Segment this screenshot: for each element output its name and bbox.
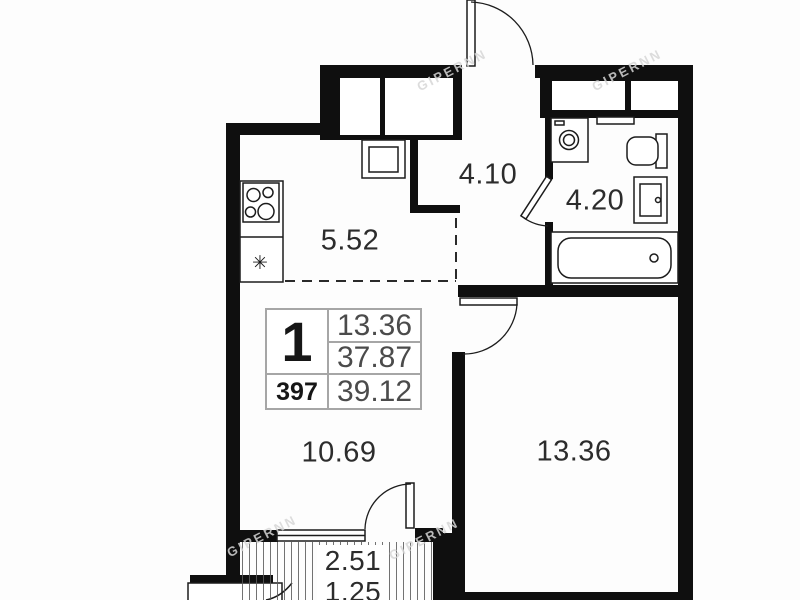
washing-machine-icon: [551, 118, 588, 162]
balcony-window: [277, 530, 365, 541]
hallway-area-label: 4.10: [459, 159, 517, 192]
bedroom-area-label: 13.36: [536, 436, 611, 469]
apartment-info-table: 1 13.36 37.87 397 39.12: [265, 308, 422, 410]
balcony-reduced-area-label: 1.25: [325, 576, 382, 600]
stove-icon: [243, 183, 279, 222]
bedroom-door: [460, 298, 517, 354]
floor-plan: 5.52 4.10 4.20 10.69 13.36 2.51 1.25 ✳ 1…: [0, 0, 800, 600]
bathroom-door: [521, 176, 552, 226]
kitchen-area-label: 5.52: [321, 225, 379, 258]
fridge-snowflake-icon: ✳: [252, 252, 268, 274]
toilet-icon: [627, 134, 667, 168]
living-area-value: 13.36: [329, 310, 420, 343]
balcony-area-labels: 2.51 1.25: [317, 545, 389, 600]
entrance-door: [467, 0, 533, 66]
bathtub-icon: [551, 232, 678, 283]
bathroom-sink-icon: [634, 177, 667, 223]
total-area-value: 39.12: [329, 373, 420, 409]
kitchen-sink-icon: [362, 140, 405, 178]
rooms-count-value: 1: [267, 310, 329, 373]
living-area-label: 10.69: [301, 437, 376, 470]
floor-plan-drawing: [0, 0, 800, 600]
area-without-balcony-value: 37.87: [329, 343, 420, 373]
bathroom-shelf: [597, 117, 634, 124]
bathroom-area-label: 4.20: [566, 185, 624, 218]
unit-number-value: 397: [267, 373, 329, 409]
balcony-area-label: 2.51: [325, 545, 382, 576]
balcony-door: [365, 483, 414, 529]
